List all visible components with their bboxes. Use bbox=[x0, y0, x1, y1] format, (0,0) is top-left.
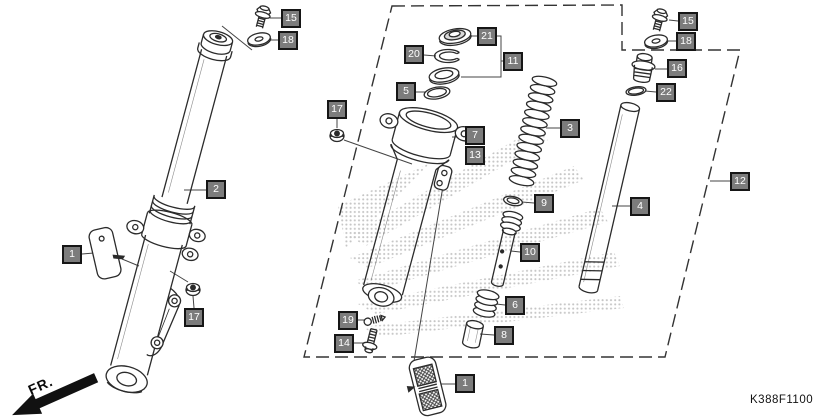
reflector-bottom bbox=[402, 355, 448, 418]
washer-18-left bbox=[247, 31, 272, 49]
bushing-5 bbox=[423, 85, 451, 101]
front-fork-left-assembly bbox=[85, 4, 272, 401]
part-callout-14[interactable]: 14 bbox=[334, 334, 354, 353]
oil-seal-11 bbox=[428, 66, 460, 87]
bolt-15-right bbox=[649, 7, 669, 32]
fork-bolt-16 bbox=[630, 52, 657, 84]
reflector-left bbox=[88, 225, 129, 281]
part-callout-6[interactable]: 6 bbox=[505, 296, 525, 315]
o-ring-22 bbox=[626, 85, 647, 96]
part-callout-11[interactable]: 11 bbox=[503, 52, 523, 71]
part-callout-1-left[interactable]: 1 bbox=[62, 245, 82, 264]
part-callout-3[interactable]: 3 bbox=[560, 119, 580, 138]
part-callout-2[interactable]: 2 bbox=[206, 180, 226, 199]
part-callout-7[interactable]: 7 bbox=[465, 126, 485, 145]
cap-21 bbox=[438, 26, 472, 47]
nut-17-bottom bbox=[186, 284, 200, 296]
part-callout-16[interactable]: 16 bbox=[667, 59, 687, 78]
parts-diagram-page: 15 18 2 1 17 17 20 21 11 5 7 13 3 9 10 6… bbox=[0, 0, 840, 420]
part-callout-15-left[interactable]: 15 bbox=[281, 9, 301, 28]
part-callout-12[interactable]: 12 bbox=[730, 172, 750, 191]
diagram-part-code: K388F1100 bbox=[750, 394, 813, 406]
part-callout-22[interactable]: 22 bbox=[656, 83, 676, 102]
bolt-15-left bbox=[252, 4, 272, 29]
part-callout-13[interactable]: 13 bbox=[465, 146, 485, 165]
part-callout-4[interactable]: 4 bbox=[630, 197, 650, 216]
part-callout-15-right[interactable]: 15 bbox=[678, 12, 698, 31]
part-callout-8[interactable]: 8 bbox=[494, 326, 514, 345]
part-callout-18-right[interactable]: 18 bbox=[676, 32, 696, 51]
part-callout-17-bottom[interactable]: 17 bbox=[184, 308, 204, 327]
part-callout-1-bottom[interactable]: 1 bbox=[455, 374, 475, 393]
part-callout-5[interactable]: 5 bbox=[396, 82, 416, 101]
fork-spring-3 bbox=[508, 74, 557, 187]
part-callout-20[interactable]: 20 bbox=[404, 45, 424, 64]
nut-17-middle bbox=[330, 130, 344, 142]
part-callout-19[interactable]: 19 bbox=[338, 311, 358, 330]
part-callout-21[interactable]: 21 bbox=[477, 27, 497, 46]
stopper-ring-20 bbox=[435, 50, 460, 63]
part-callout-9[interactable]: 9 bbox=[534, 194, 554, 213]
part-callout-10[interactable]: 10 bbox=[520, 243, 540, 262]
drain-screw-19 bbox=[363, 313, 386, 326]
part-callout-18-left[interactable]: 18 bbox=[278, 31, 298, 50]
part-callout-17-mid[interactable]: 17 bbox=[327, 100, 347, 119]
washer-18-right bbox=[644, 33, 669, 50]
